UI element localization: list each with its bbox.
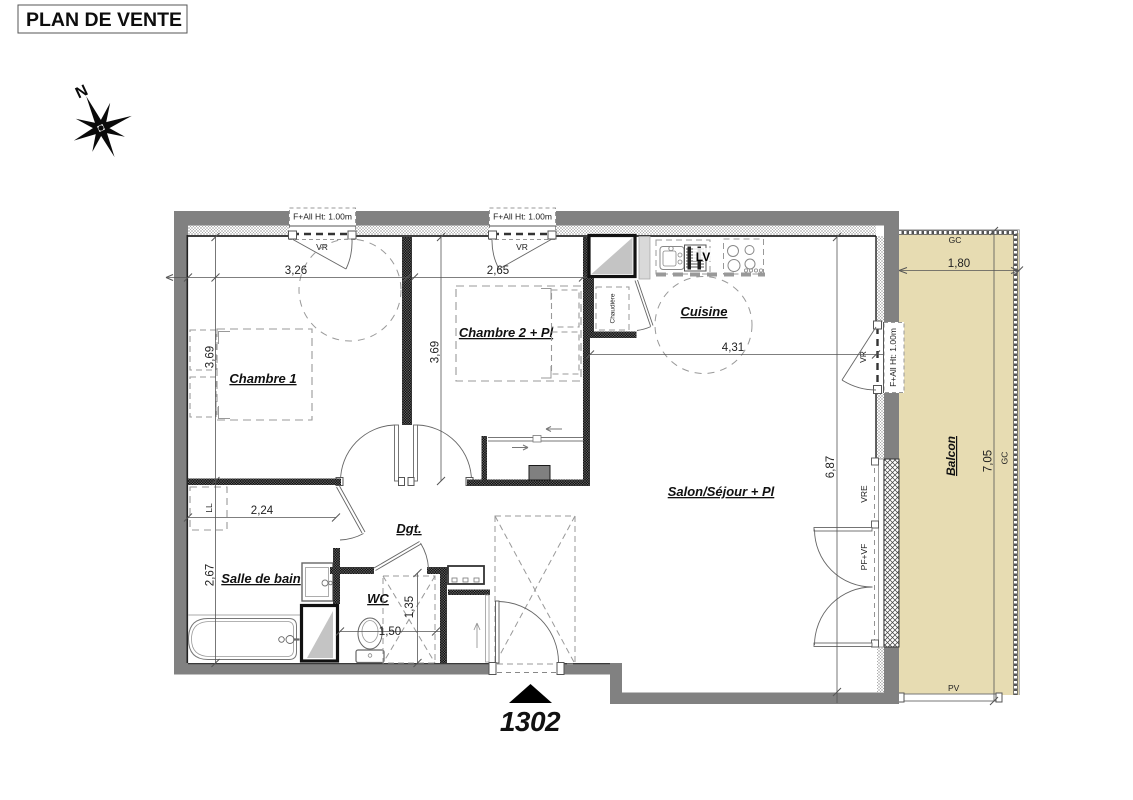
svg-text:2,24: 2,24 [251,505,274,517]
svg-text:Balcon: Balcon [944,436,958,476]
svg-text:PV: PV [948,683,960,693]
svg-text:WC: WC [367,591,389,606]
svg-text:1,50: 1,50 [379,626,401,638]
svg-text:4,31: 4,31 [722,342,744,354]
svg-text:Dgt.: Dgt. [396,521,421,536]
svg-text:3,26: 3,26 [285,265,307,277]
svg-text:GC: GC [1000,452,1010,465]
svg-text:1302: 1302 [500,706,561,737]
svg-text:7,05: 7,05 [983,450,995,472]
svg-text:GC: GC [949,235,962,245]
svg-text:VR: VR [516,242,528,252]
svg-text:F+All Ht: 1.00m: F+All Ht: 1.00m [293,212,352,222]
svg-text:2,65: 2,65 [487,265,509,277]
svg-text:LL: LL [204,503,214,513]
svg-text:Salle de bain: Salle de bain [221,571,301,586]
svg-text:Chaudière: Chaudière [610,293,617,323]
svg-text:VRE: VRE [859,485,869,503]
svg-text:Chambre 1: Chambre 1 [229,371,296,386]
svg-text:3,69: 3,69 [205,346,217,368]
svg-text:2,67: 2,67 [205,564,217,586]
svg-text:VR: VR [858,351,868,363]
svg-text:1,80: 1,80 [948,258,970,270]
svg-text:PLAN DE VENTE: PLAN DE VENTE [26,9,182,31]
svg-text:F+All Ht: 1.00m: F+All Ht: 1.00m [493,212,552,222]
svg-text:PF+VF: PF+VF [859,544,869,571]
svg-text:3,69: 3,69 [430,341,442,363]
svg-text:Salon/Séjour + Pl: Salon/Séjour + Pl [668,484,775,499]
svg-text:LV: LV [696,250,710,264]
svg-text:Cuisine: Cuisine [681,304,728,319]
svg-text:6,87: 6,87 [825,456,837,478]
svg-text:1,35: 1,35 [404,596,416,618]
svg-text:F+All Ht: 1.00m: F+All Ht: 1.00m [888,328,898,387]
svg-text:Chambre 2 + Pl: Chambre 2 + Pl [459,325,554,340]
